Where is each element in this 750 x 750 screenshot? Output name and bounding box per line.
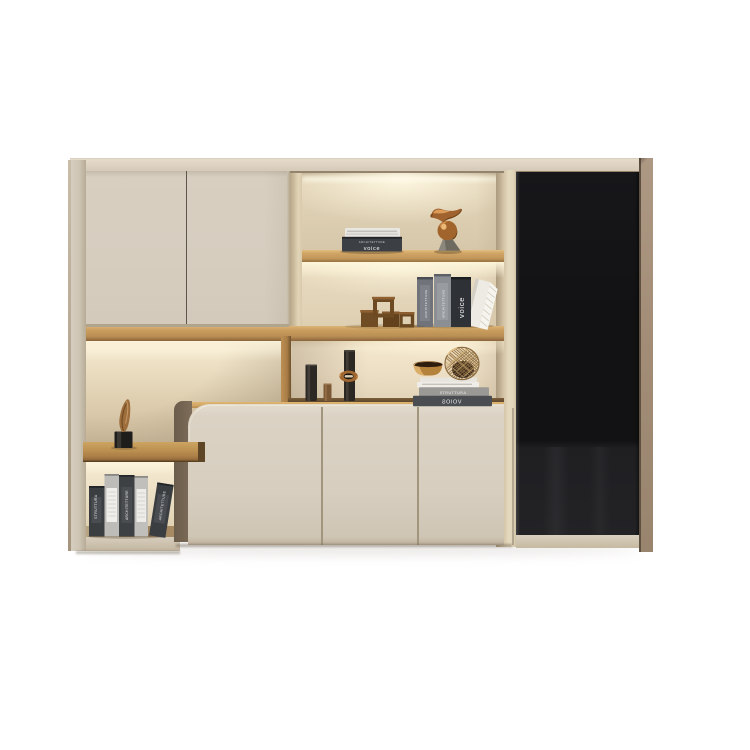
svg-text:ARCHITETTURE: ARCHITETTURE	[442, 289, 446, 318]
svg-text:ƧOIOV: ƧOIOV	[442, 400, 462, 406]
svg-text:STRUTTURA: STRUTTURA	[440, 391, 467, 395]
svg-text:ARCHITETTURE: ARCHITETTURE	[424, 289, 428, 318]
svg-text:voice: voice	[364, 246, 381, 252]
svg-text:ARCHITETTURE: ARCHITETTURE	[125, 490, 129, 520]
svg-text:voice: voice	[457, 297, 466, 318]
svg-text:STRUTTURA: STRUTTURA	[94, 494, 98, 519]
svg-text:ARCHITETTURE: ARCHITETTURE	[359, 240, 385, 244]
